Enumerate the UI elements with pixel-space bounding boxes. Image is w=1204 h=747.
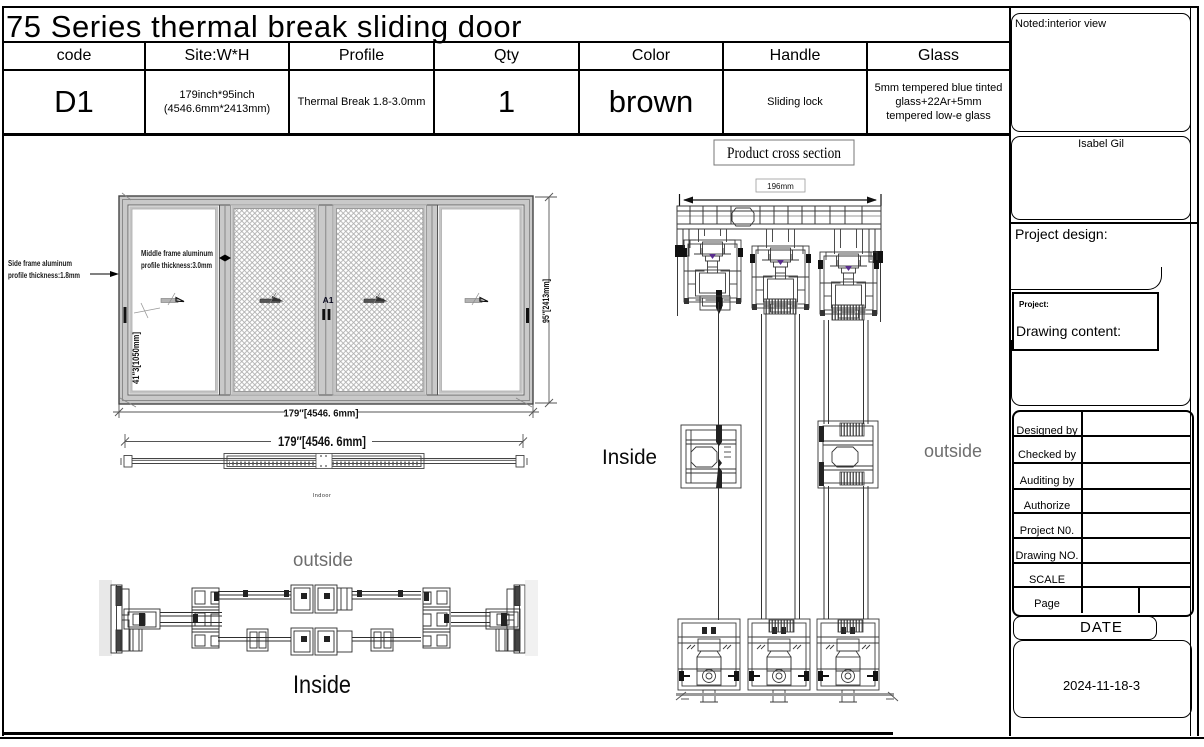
svg-text:Side frame aluminum: Side frame aluminum <box>8 258 72 268</box>
svg-text:196mm: 196mm <box>767 182 794 191</box>
svg-text:Inside: Inside <box>602 446 657 469</box>
svg-text:profile thickness:1.8mm: profile thickness:1.8mm <box>8 270 80 280</box>
svg-text:95″[2413mm]: 95″[2413mm] <box>541 279 552 323</box>
svg-text:outside: outside <box>293 550 353 571</box>
svg-text:179″[4546. 6mm]: 179″[4546. 6mm] <box>278 434 366 449</box>
svg-text:profile thickness:3.0mm: profile thickness:3.0mm <box>141 260 212 270</box>
svg-text:outside: outside <box>924 441 982 461</box>
svg-text:Middle frame aluminum: Middle frame aluminum <box>141 248 213 258</box>
svg-text:Inside: Inside <box>293 671 351 699</box>
svg-text:A1: A1 <box>323 295 334 305</box>
svg-text:Product cross section: Product cross section <box>727 145 841 162</box>
svg-text:179″[4546. 6mm]: 179″[4546. 6mm] <box>284 408 359 420</box>
svg-text:Indoor: Indoor <box>313 493 332 499</box>
svg-text:41″3[1050mm]: 41″3[1050mm] <box>131 332 141 384</box>
